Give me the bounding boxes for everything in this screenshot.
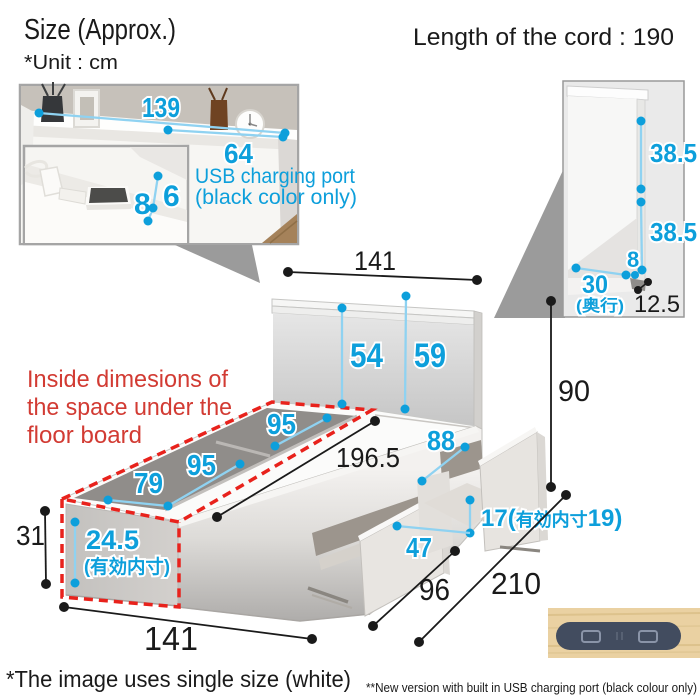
svg-text:12.5: 12.5 <box>634 291 680 318</box>
svg-text:(奥行): (奥行) <box>576 296 624 315</box>
svg-text:38.5: 38.5 <box>650 138 697 168</box>
svg-text:8: 8 <box>627 247 639 272</box>
svg-text:*Unit : cm: *Unit : cm <box>24 52 118 74</box>
svg-text:the space under the: the space under the <box>27 394 232 421</box>
svg-text:38.5: 38.5 <box>650 217 697 247</box>
svg-text:8: 8 <box>134 188 151 221</box>
svg-text:59: 59 <box>414 337 446 375</box>
svg-text:54: 54 <box>350 337 383 375</box>
svg-text:USB charging port: USB charging port <box>195 165 355 188</box>
svg-text:90: 90 <box>558 375 590 408</box>
svg-text:30: 30 <box>582 271 608 299</box>
svg-text:24.5: 24.5 <box>86 525 139 555</box>
svg-text:141: 141 <box>144 620 198 657</box>
svg-text:47: 47 <box>406 532 432 563</box>
svg-text:6: 6 <box>163 180 180 213</box>
svg-text:*The image uses single size (w: *The image uses single size (white) <box>6 666 351 692</box>
svg-text:196.5: 196.5 <box>336 442 400 473</box>
svg-text:Length of the cord : 190: Length of the cord : 190 <box>413 24 674 51</box>
svg-text:96: 96 <box>419 572 450 607</box>
svg-text:210: 210 <box>491 566 541 601</box>
svg-text:139: 139 <box>142 92 180 123</box>
svg-text:Size (Approx.): Size (Approx.) <box>24 14 176 46</box>
svg-text:95: 95 <box>187 450 216 482</box>
svg-text:(black color only): (black color only) <box>195 186 357 209</box>
svg-text:(有効内寸): (有効内寸) <box>84 555 170 578</box>
svg-text:79: 79 <box>134 468 163 500</box>
svg-text:floor board: floor board <box>27 422 142 449</box>
svg-text:31: 31 <box>16 520 45 551</box>
svg-text:141: 141 <box>354 246 396 276</box>
svg-text:88: 88 <box>427 425 455 456</box>
svg-text:**New version with built in US: **New version with built in USB charging… <box>366 681 697 695</box>
svg-text:Inside dimesions of: Inside dimesions of <box>27 366 228 393</box>
svg-text:95: 95 <box>267 409 296 441</box>
